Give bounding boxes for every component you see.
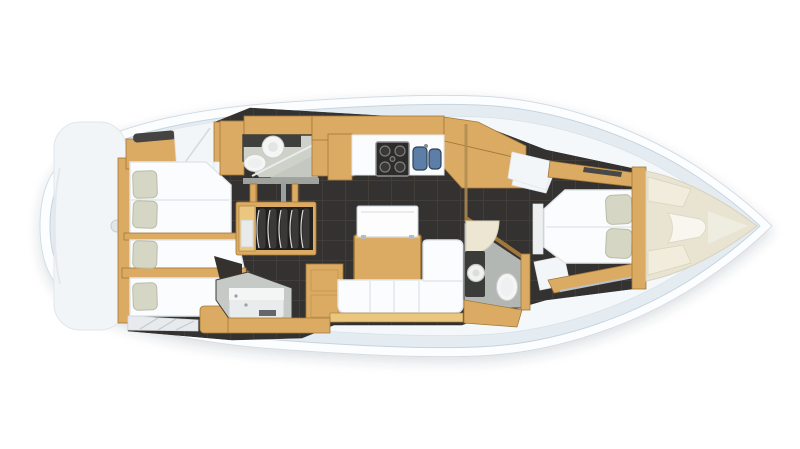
bed-foot-step	[533, 204, 543, 254]
locker-door	[241, 220, 253, 247]
washbasin-bowl	[268, 142, 278, 152]
galley-cabinet	[328, 134, 352, 180]
grab-post	[281, 182, 286, 202]
knob-icon	[234, 294, 237, 297]
toilet-lid	[248, 158, 262, 168]
faucet-icon	[424, 144, 428, 148]
sink-bowl	[413, 147, 427, 170]
folding-table-leaf	[357, 206, 418, 237]
shower-unit-top	[229, 288, 284, 300]
yacht-deck-plan	[0, 0, 800, 449]
table-leg	[409, 235, 414, 239]
cabinet-run	[228, 318, 330, 333]
forward-bulkhead	[632, 167, 646, 289]
head-cabinet	[220, 121, 244, 175]
dining-table	[354, 235, 421, 282]
toilet-lid	[501, 278, 514, 297]
pillow	[133, 283, 158, 311]
pillow	[605, 228, 632, 258]
vent-grille-icon	[259, 310, 276, 316]
settee-plinth	[330, 313, 463, 322]
pillow	[605, 194, 632, 224]
pillow	[133, 201, 158, 229]
head-partition	[521, 254, 530, 310]
washbasin-drain	[473, 270, 480, 277]
pillow	[133, 171, 158, 199]
table-leg	[361, 235, 366, 239]
knob-icon	[244, 303, 247, 306]
cabin-divider-bulkhead	[124, 233, 240, 240]
companionway-post	[292, 184, 298, 204]
pillow	[133, 241, 158, 269]
companionway-post	[250, 184, 256, 204]
headboard-shelf	[118, 158, 131, 323]
sink-bowl	[429, 149, 441, 169]
deck-plan-canvas	[0, 0, 800, 449]
